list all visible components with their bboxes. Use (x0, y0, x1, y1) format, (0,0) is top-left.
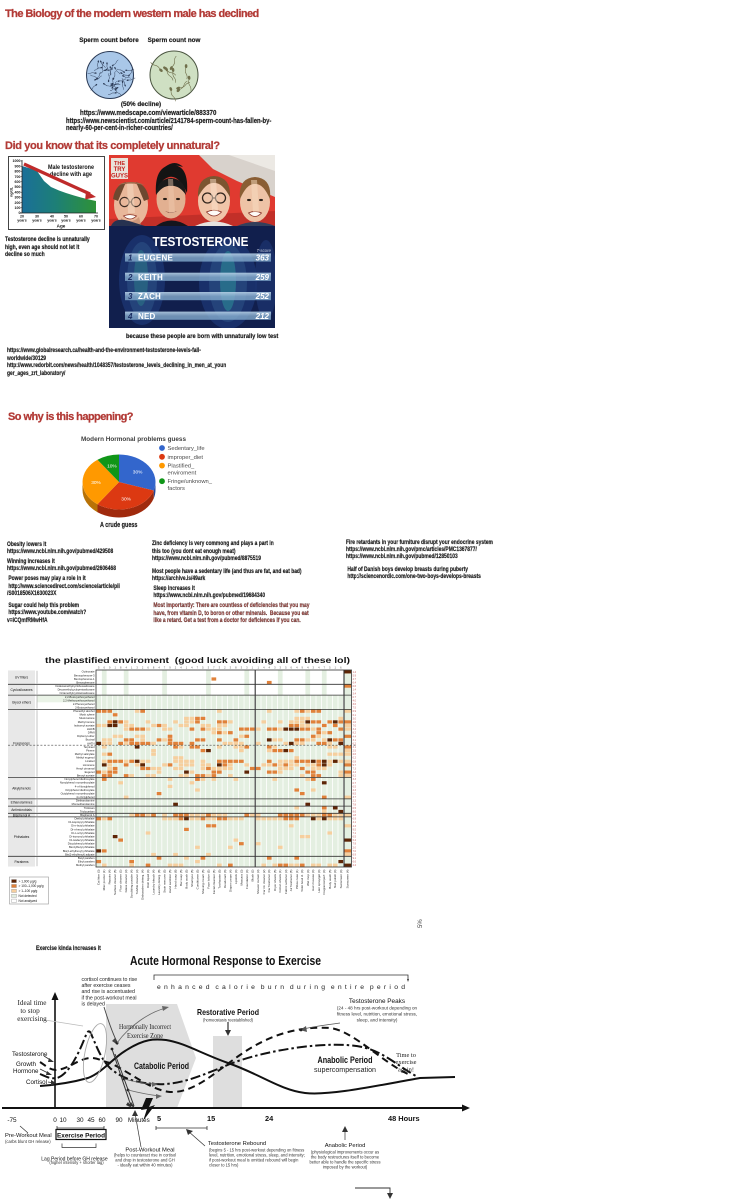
svg-text:7.0: 7.0 (353, 850, 357, 853)
svg-text:7.5: 7.5 (353, 707, 357, 710)
svg-text:4-t-Octylphenol: 4-t-Octylphenol (76, 795, 95, 799)
svg-text:Ethyl paraben: Ethyl paraben (78, 860, 95, 864)
svg-text:5: 5 (98, 665, 100, 669)
svg-text:1: 1 (131, 665, 133, 669)
svg-text:(24 - 48 hrs post-workout depe: (24 - 48 hrs post-workout depending on (337, 1006, 418, 1011)
svg-text:45: 45 (87, 1117, 95, 1124)
svg-text:Methyl eugenol: Methyl eugenol (76, 756, 95, 760)
svg-text:400: 400 (15, 190, 21, 194)
svg-text:363: 363 (256, 254, 270, 263)
svg-text:(homeostasis reestablished): (homeostasis reestablished) (203, 1018, 254, 1023)
svg-text:Alkylphenols: Alkylphenols (12, 786, 31, 790)
svg-text:8: 8 (153, 665, 155, 669)
svg-text:Sunscreen (4): Sunscreen (4) (346, 870, 350, 889)
svg-text:9: 9 (109, 665, 111, 669)
svg-text:Di-n-octyl phthalate: Di-n-octyl phthalate (71, 831, 95, 835)
svg-text:fitness level, nutrition, emot: fitness level, nutrition, emotional stre… (337, 1012, 417, 1017)
svg-text:0.5: 0.5 (353, 807, 357, 810)
svg-text:4: 4 (158, 665, 160, 669)
svg-text:Minutes: Minutes (128, 1117, 150, 1124)
svg-text:Eugenol: Eugenol (85, 770, 95, 774)
svg-text:0.7: 0.7 (353, 782, 357, 785)
svg-text:Octinoxate: Octinoxate (82, 670, 95, 674)
svg-text:5.7: 5.7 (353, 764, 357, 767)
svg-text:Scrubbing powder (4): Scrubbing powder (4) (130, 870, 134, 899)
svg-text:closer to 15 hrs): closer to 15 hrs) (209, 1163, 239, 1168)
svg-text:Nail polish (4): Nail polish (4) (333, 870, 337, 888)
svg-text:NED: NED (138, 312, 156, 321)
svg-text:5%: 5% (418, 919, 424, 928)
svg-text:T-score: T-score (257, 248, 272, 253)
svg-text:2-Phenoxyethanol: 2-Phenoxyethanol (73, 702, 95, 706)
svg-text:Musk ketone: Musk ketone (79, 716, 95, 720)
svg-text:Di-isononyl phthalate: Di-isononyl phthalate (69, 834, 95, 838)
svg-text:Benzophenone: Benzophenone (76, 680, 95, 684)
svg-text:years: years (17, 219, 26, 223)
svg-text:2.2: 2.2 (353, 800, 357, 803)
svg-text:252: 252 (255, 292, 270, 301)
svg-text:1.4: 1.4 (353, 689, 357, 692)
svg-text:Stain remover (5): Stain remover (5) (163, 870, 167, 893)
svg-text:Conditioner (5): Conditioner (5) (195, 870, 199, 890)
svg-text:Exercise Zone: Exercise Zone (127, 1031, 164, 1040)
svg-text:10: 10 (59, 1117, 67, 1124)
svg-text:ZACH: ZACH (138, 292, 161, 301)
svg-text:Restorative Period: Restorative Period (197, 1007, 259, 1017)
svg-text:Ethanolamines: Ethanolamines (11, 801, 33, 805)
svg-text:Hand soap (8): Hand soap (8) (174, 870, 178, 889)
svg-text:Car int. cleaner (2): Car int. cleaner (2) (262, 870, 266, 895)
svg-text:Floor cleaner (3): Floor cleaner (3) (119, 870, 123, 892)
svg-text:30: 30 (76, 1117, 84, 1124)
svg-text:Bar soap (5): Bar soap (5) (179, 870, 183, 887)
svg-text:Car freshener (4): Car freshener (4) (267, 870, 271, 893)
svg-text:4: 4 (268, 665, 270, 669)
svg-text:> 1,000 μg/g: > 1,000 μg/g (19, 879, 37, 883)
svg-text:Surface cleaner (5): Surface cleaner (5) (113, 870, 117, 896)
svg-text:Bucinal: Bucinal (86, 738, 95, 742)
svg-text:4.7: 4.7 (353, 678, 357, 681)
svg-text:1.0: 1.0 (353, 721, 357, 724)
svg-text:7.3: 7.3 (353, 768, 357, 771)
svg-text:6: 6 (340, 665, 342, 669)
svg-text:Octylphenol monoethoxylate: Octylphenol monoethoxylate (61, 792, 95, 796)
svg-text:4.1: 4.1 (353, 821, 357, 824)
svg-text:DPMI: DPMI (88, 731, 95, 735)
svg-text:years: years (32, 219, 41, 223)
svg-text:Hexyl cinnamal: Hexyl cinnamal (76, 766, 95, 770)
svg-text:3: 3 (241, 665, 243, 669)
svg-text:Deodorant (6): Deodorant (6) (223, 870, 227, 889)
svg-text:Exercise Period: Exercise Period (57, 1133, 105, 1140)
svg-text:2: 2 (127, 273, 133, 282)
svg-text:Di-n-hexyl phthalate: Di-n-hexyl phthalate (71, 827, 95, 831)
svg-text:9.1: 9.1 (353, 857, 357, 860)
svg-text:8.6: 8.6 (353, 811, 357, 814)
svg-text:and rise is accentuated: and rise is accentuated (82, 989, 135, 995)
svg-text:cortisol continues to rise: cortisol continues to rise (82, 977, 138, 983)
svg-text:3: 3 (274, 665, 276, 669)
svg-text:Acute Hormonal Response to Exe: Acute Hormonal Response to Exercise (130, 953, 321, 968)
svg-text:Laundry deterg. (8): Laundry deterg. (8) (157, 870, 161, 896)
svg-text:3.1: 3.1 (353, 739, 357, 742)
svg-text:1: 1 (186, 665, 188, 669)
svg-text:4: 4 (191, 665, 193, 669)
svg-text:is delayed: is delayed (82, 1002, 105, 1008)
svg-text:Dish liquid (4): Dish liquid (4) (146, 870, 150, 888)
svg-text:7: 7 (164, 665, 166, 669)
svg-text:Nonylphenol monoethoxylate: Nonylphenol monoethoxylate (60, 781, 95, 785)
svg-text:2.4: 2.4 (353, 864, 357, 867)
svg-text:Methyl ionone: Methyl ionone (78, 720, 95, 724)
svg-text:Catabolic Period: Catabolic Period (134, 1061, 189, 1071)
svg-text:6.9: 6.9 (353, 710, 357, 713)
svg-text:500: 500 (15, 185, 21, 189)
svg-text:300: 300 (15, 196, 21, 200)
svg-text:Hair mousse (4): Hair mousse (4) (311, 870, 315, 891)
svg-text:3.4: 3.4 (353, 692, 357, 695)
svg-text:2-Butoxyethanol: 2-Butoxyethanol (75, 706, 95, 710)
svg-text:Anabolic Period: Anabolic Period (318, 1055, 373, 1065)
svg-text:5: 5 (329, 665, 331, 669)
svg-text:TESTOSTERONE: TESTOSTERONE (153, 234, 249, 249)
svg-text:Toothpaste (5): Toothpaste (5) (217, 870, 221, 889)
svg-text:0: 0 (53, 1117, 57, 1124)
svg-text:900: 900 (15, 164, 21, 168)
svg-text:90: 90 (115, 1117, 123, 1124)
svg-text:3.4: 3.4 (353, 728, 357, 731)
svg-text:Parabens: Parabens (14, 860, 28, 864)
svg-text:3: 3 (279, 665, 281, 669)
svg-text:24: 24 (265, 1114, 274, 1123)
svg-text:(higher intensity + shorter la: (higher intensity + shorter lag) (49, 1160, 104, 1165)
svg-text:Hair spray/gel (4): Hair spray/gel (4) (317, 870, 321, 893)
svg-text:Diphenyl ether: Diphenyl ether (77, 734, 94, 738)
svg-text:Not detected: Not detected (19, 894, 37, 898)
svg-text:Diaper cream (4): Diaper cream (4) (228, 870, 232, 893)
svg-text:8: 8 (120, 665, 122, 669)
svg-text:9: 9 (169, 665, 171, 669)
svg-text:Time to: Time to (396, 1052, 416, 1059)
svg-text:years: years (47, 219, 56, 223)
svg-text:Methyl salicylate: Methyl salicylate (75, 752, 95, 756)
svg-text:Repairs (4): Repairs (4) (108, 870, 112, 885)
svg-text:ng/dL: ng/dL (10, 186, 14, 197)
svg-text:exercise: exercise (396, 1059, 417, 1066)
svg-text:6: 6 (290, 665, 292, 669)
svg-text:Di-n-butyl phthalate: Di-n-butyl phthalate (71, 824, 95, 828)
svg-text:0.6: 0.6 (353, 685, 357, 688)
svg-text:Shaving cream (5): Shaving cream (5) (201, 870, 205, 895)
svg-text:4: 4 (127, 312, 133, 321)
svg-text:Dishwasher deterg. (4): Dishwasher deterg. (4) (141, 870, 145, 900)
svg-text:4: 4 (296, 665, 298, 669)
svg-text:Modern Hormonal problems guess: Modern Hormonal problems guess (81, 437, 187, 443)
svg-text:Foundation (4): Foundation (4) (245, 870, 249, 890)
svg-text:0.8: 0.8 (353, 760, 357, 763)
svg-text:8.2: 8.2 (353, 732, 357, 735)
svg-text:Monoethanolamine: Monoethanolamine (72, 802, 95, 806)
svg-text:Growth: Growth (16, 1061, 37, 1068)
svg-text:4.0: 4.0 (353, 699, 357, 702)
svg-text:4-n-Nonylphenol: 4-n-Nonylphenol (75, 784, 95, 788)
svg-text:Sedentary_life: Sedentary_life (168, 446, 205, 452)
svg-text:Linalool: Linalool (85, 759, 95, 763)
svg-text:Face lotion (5): Face lotion (5) (206, 870, 210, 889)
svg-text:Body wash (5): Body wash (5) (185, 870, 189, 889)
svg-text:Air freshener (5): Air freshener (5) (289, 870, 293, 892)
svg-text:Isobornyl acetate: Isobornyl acetate (74, 723, 95, 727)
svg-text:Shower curtain (3): Shower curtain (3) (256, 870, 260, 895)
svg-text:3.3: 3.3 (353, 778, 357, 781)
svg-text:600: 600 (15, 180, 21, 184)
svg-text:2,2-Methoxyethoxyethanol: 2,2-Methoxyethoxyethanol (63, 698, 95, 702)
svg-text:Fabric softener (3): Fabric softener (3) (284, 870, 288, 895)
svg-text:30%: 30% (133, 470, 143, 476)
svg-text:factors: factors (168, 486, 185, 492)
svg-text:Di-isodecyl phthalate: Di-isodecyl phthalate (70, 838, 95, 842)
svg-text:700: 700 (15, 175, 21, 179)
svg-text:8: 8 (235, 665, 237, 669)
svg-text:-75: -75 (7, 1117, 17, 1124)
svg-text:if the post-workout meal: if the post-workout meal (82, 995, 137, 1001)
svg-text:5: 5 (202, 665, 204, 669)
svg-text:UV filters: UV filters (15, 675, 29, 679)
svg-text:0.2: 0.2 (353, 757, 357, 760)
svg-text:7: 7 (213, 665, 215, 669)
svg-text:3.7: 3.7 (353, 796, 357, 799)
svg-text:2: 2 (224, 665, 226, 669)
svg-text:Dryer sheets (5): Dryer sheets (5) (273, 870, 277, 892)
svg-text:Hand sanitizer (5): Hand sanitizer (5) (168, 870, 172, 894)
svg-text:3: 3 (246, 665, 248, 669)
svg-text:Anabolic Period: Anabolic Period (325, 1143, 366, 1149)
svg-text:Body wash (5): Body wash (5) (328, 870, 332, 889)
svg-text:Phthalates: Phthalates (14, 835, 30, 839)
svg-text:Bis(2-ethylhexyl) adipate: Bis(2-ethylhexyl) adipate (65, 852, 95, 856)
svg-text:4: 4 (307, 665, 309, 669)
svg-text:Lipstick (4): Lipstick (4) (234, 870, 238, 885)
svg-text:> 100–1,000 μg/g: > 100–1,000 μg/g (19, 884, 44, 888)
svg-text:exercising: exercising (17, 1015, 47, 1023)
svg-text:3: 3 (208, 665, 210, 669)
svg-text:Not analyzed: Not analyzed (19, 899, 38, 903)
svg-text:Limonene: Limonene (83, 763, 95, 767)
svg-text:Tub/tile cleaner (3): Tub/tile cleaner (3) (135, 870, 139, 895)
svg-text:3: 3 (230, 665, 232, 669)
svg-text:Musk xylene: Musk xylene (80, 713, 95, 717)
svg-text:Benzophenone-3: Benzophenone-3 (74, 673, 95, 677)
svg-text:(carbs blunt GH release): (carbs blunt GH release) (5, 1139, 51, 1144)
svg-text:Triclocarban: Triclocarban (80, 809, 95, 813)
svg-text:Fringe/unknown_: Fringe/unknown_ (168, 479, 213, 485)
svg-text:1.4: 1.4 (353, 671, 357, 674)
svg-text:after exercise ceases: after exercise ceases (82, 983, 131, 989)
svg-text:5: 5 (157, 1114, 161, 1123)
svg-text:- ideally eat within 40 minute: - ideally eat within 40 minutes) (117, 1162, 173, 1167)
svg-text:6.5: 6.5 (353, 785, 357, 788)
svg-text:Wet mop (4): Wet mop (4) (306, 870, 310, 886)
svg-text:1: 1 (252, 665, 254, 669)
svg-text:Benzophenone-1: Benzophenone-1 (74, 677, 95, 681)
svg-text:Octamethylcyclotetrasiloxane: Octamethylcyclotetrasiloxane (60, 691, 95, 695)
svg-text:7.8: 7.8 (353, 803, 357, 806)
svg-text:4: 4 (180, 665, 182, 669)
svg-text:3: 3 (219, 665, 221, 669)
svg-text:7.0: 7.0 (353, 725, 357, 728)
svg-text:Age: Age (57, 224, 66, 229)
svg-text:AHTN: AHTN (87, 741, 94, 745)
svg-text:Dicyclohexyl phthalate: Dicyclohexyl phthalate (68, 842, 95, 846)
svg-text:7: 7 (197, 665, 199, 669)
svg-text:GUYS: GUYS (111, 174, 128, 180)
svg-text:again!: again! (398, 1066, 414, 1073)
svg-text:years: years (76, 219, 85, 223)
svg-text:e n h a n c e d c a l o r i: e n h a n c e d c a l o r i e b u r n d … (157, 984, 405, 991)
svg-text:Bis(2-ethylhexyl) phthalate: Bis(2-ethylhexyl) phthalate (63, 849, 95, 853)
svg-text:6.4: 6.4 (353, 839, 357, 842)
svg-text:48 Hours: 48 Hours (388, 1114, 420, 1123)
svg-text:years: years (61, 219, 70, 223)
svg-text:Cortisol: Cortisol (26, 1079, 47, 1086)
svg-text:212: 212 (255, 312, 270, 321)
svg-text:Decamethylcyclopentasiloxane: Decamethylcyclopentasiloxane (58, 688, 95, 692)
svg-text:6.9: 6.9 (353, 818, 357, 821)
svg-text:4.3: 4.3 (353, 825, 357, 828)
svg-text:KEITH: KEITH (138, 273, 163, 282)
svg-text:TRY: TRY (114, 167, 126, 173)
svg-text:6.4: 6.4 (353, 682, 357, 685)
svg-text:9: 9 (301, 665, 303, 669)
svg-text:Facial cleanser (5): Facial cleanser (5) (212, 870, 216, 895)
svg-text:3: 3 (312, 665, 314, 669)
svg-text:10%: 10% (107, 463, 117, 469)
svg-text:3.1: 3.1 (353, 746, 357, 749)
svg-text:Glycol ethers: Glycol ethers (12, 700, 32, 704)
svg-text:100: 100 (15, 206, 21, 210)
svg-text:Terpineol: Terpineol (84, 745, 95, 749)
svg-text:6: 6 (147, 665, 149, 669)
svg-text:the plastified enviroment (go: the plastified enviroment (good luck avo… (45, 656, 351, 665)
svg-text:7.9: 7.9 (353, 843, 357, 846)
svg-text:800: 800 (15, 170, 21, 174)
svg-text:Cotton sheets (1): Cotton sheets (1) (278, 870, 282, 893)
svg-text:6.6: 6.6 (353, 861, 357, 864)
svg-text:Blush (2): Blush (2) (250, 870, 254, 882)
svg-text:Fragrance/perf. (4): Fragrance/perf. (4) (322, 870, 326, 895)
svg-text:Cyclosiloxanes: Cyclosiloxanes (11, 688, 33, 692)
svg-text:Di-isopropyl phthalate: Di-isopropyl phthalate (69, 820, 95, 824)
svg-text:4: 4 (125, 665, 127, 669)
svg-text:Testosterone Peaks: Testosterone Peaks (349, 998, 405, 1005)
svg-text:imposed by the workout): imposed by the workout) (323, 1165, 368, 1170)
svg-text:2.0: 2.0 (353, 846, 357, 849)
svg-text:60: 60 (98, 1117, 106, 1124)
svg-text:30%: 30% (91, 480, 101, 486)
svg-text:5: 5 (285, 665, 287, 669)
svg-text:7: 7 (323, 665, 325, 669)
svg-text:Plastified_: Plastified_ (168, 464, 196, 470)
svg-text:6: 6 (103, 665, 105, 669)
svg-text:Pinene: Pinene (86, 749, 95, 753)
svg-text:1: 1 (257, 665, 259, 669)
svg-text:Hormone: Hormone (13, 1068, 39, 1075)
svg-text:enviroment: enviroment (168, 470, 197, 476)
svg-text:Testosterone Rebound: Testosterone Rebound (208, 1141, 266, 1147)
svg-text:9.5: 9.5 (353, 828, 357, 831)
svg-text:3.6: 3.6 (353, 703, 357, 706)
svg-text:1: 1 (128, 254, 133, 263)
svg-text:HHCB: HHCB (87, 727, 95, 731)
svg-text:Sunscreen (4): Sunscreen (4) (339, 870, 343, 889)
svg-text:Shampoo (5): Shampoo (5) (190, 870, 194, 887)
svg-text:1: 1 (334, 665, 336, 669)
svg-text:EUGENE: EUGENE (138, 254, 173, 263)
svg-text:> 1–100 μg/g: > 1–100 μg/g (19, 889, 38, 893)
svg-text:Ideal time: Ideal time (18, 999, 47, 1007)
svg-text:Hormonally Incorrect: Hormonally Incorrect (119, 1022, 172, 1031)
svg-text:2: 2 (175, 665, 177, 669)
svg-text:4: 4 (263, 665, 265, 669)
svg-text:3: 3 (136, 665, 138, 669)
svg-text:200: 200 (15, 201, 21, 205)
svg-text:supercompensation: supercompensation (314, 1067, 376, 1074)
svg-text:Methyl paraben: Methyl paraben (76, 863, 95, 867)
svg-text:15: 15 (207, 1114, 215, 1123)
svg-text:1000: 1000 (13, 159, 21, 163)
svg-text:Benzylbutyl phthalate: Benzylbutyl phthalate (69, 845, 95, 849)
svg-text:Octylphenol diethoxylate: Octylphenol diethoxylate (65, 788, 95, 792)
svg-text:3: 3 (128, 292, 133, 301)
svg-text:30%: 30% (121, 496, 131, 502)
svg-text:improper_diet: improper_diet (168, 455, 204, 461)
svg-text:Toilet bowl cl. (4): Toilet bowl cl. (4) (300, 870, 304, 892)
svg-text:4.4: 4.4 (353, 771, 357, 774)
svg-text:4: 4 (318, 665, 320, 669)
svg-text:Misc procter (1): Misc procter (1) (102, 870, 106, 891)
svg-text:Cat litter (3): Cat litter (3) (97, 870, 101, 886)
svg-text:4.3: 4.3 (353, 789, 357, 792)
svg-text:Laundry bleach (4): Laundry bleach (4) (152, 869, 156, 894)
svg-text:Antimicrobials: Antimicrobials (11, 808, 32, 812)
svg-text:2: 2 (142, 665, 144, 669)
svg-text:years: years (91, 219, 100, 223)
svg-text:Mascara (3): Mascara (3) (239, 870, 243, 886)
svg-text:to stop: to stop (20, 1007, 40, 1015)
svg-text:Male testosterone: Male testosterone (48, 165, 95, 171)
svg-text:Pillow case (1): Pillow case (1) (295, 870, 299, 890)
svg-text:sleep, and intensity): sleep, and intensity) (357, 1018, 398, 1023)
svg-text:Benzyl acetate: Benzyl acetate (77, 774, 95, 778)
svg-text:1: 1 (114, 665, 116, 669)
svg-text:2.5: 2.5 (353, 750, 357, 753)
svg-text:3.0: 3.0 (353, 717, 357, 720)
svg-text:6.5: 6.5 (353, 836, 357, 839)
svg-text:Testosterone: Testosterone (12, 1051, 48, 1058)
svg-text:259: 259 (255, 273, 270, 282)
svg-text:Glass cleaner (3): Glass cleaner (3) (124, 870, 128, 893)
